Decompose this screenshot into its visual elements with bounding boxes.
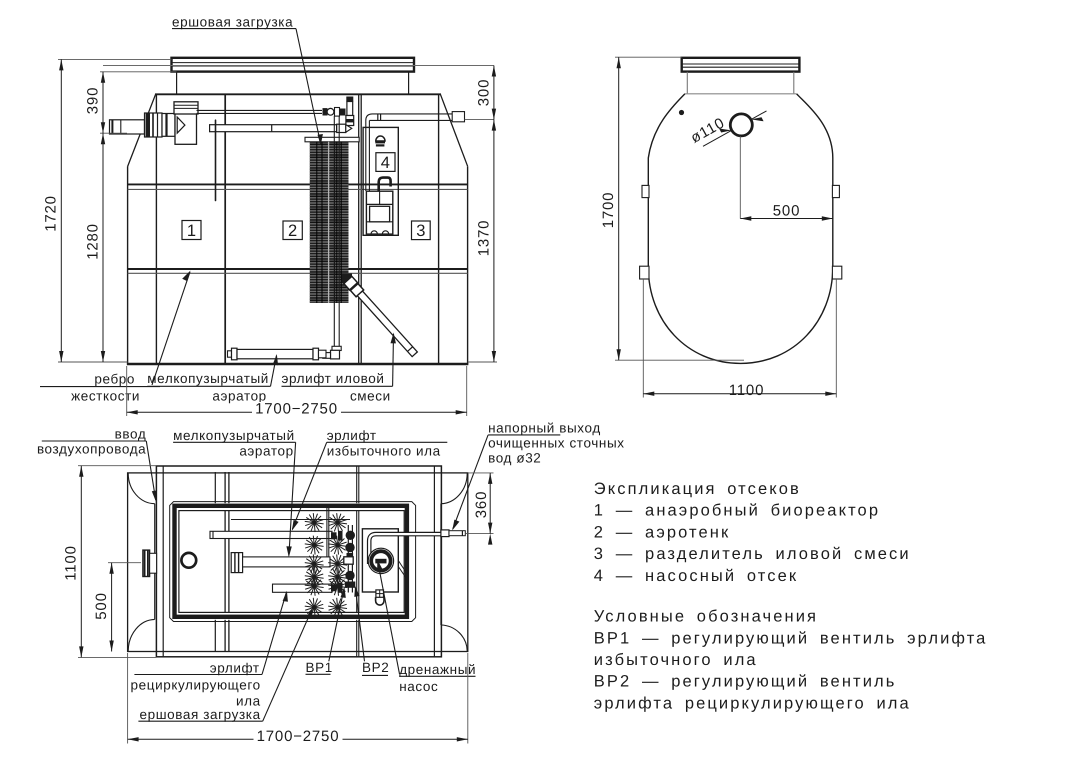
svg-text:1700: 1700 [600,192,617,229]
svg-text:ВР2 — регулирующий вентиль: ВР2 — регулирующий вентиль [594,673,897,691]
svg-text:3: 3 [416,222,425,240]
svg-text:ø110: ø110 [688,114,728,146]
svg-text:избыточного ила: избыточного ила [594,651,758,669]
svg-text:мелкопузырчатый: мелкопузырчатый [173,428,295,443]
svg-text:4: 4 [381,154,390,172]
svg-text:жесткости: жесткости [71,389,140,404]
svg-text:насос: насос [399,679,438,694]
svg-text:2 — аэротенк: 2 — аэротенк [594,523,731,541]
svg-text:вод ø32: вод ø32 [488,450,541,465]
svg-text:очищенных сточных: очищенных сточных [488,435,624,450]
svg-text:1280: 1280 [84,223,101,260]
svg-text:эрлифт: эрлифт [210,661,260,676]
svg-text:ершовая загрузка: ершовая загрузка [172,14,293,29]
svg-text:1700−2750: 1700−2750 [255,401,338,418]
svg-text:390: 390 [84,87,101,114]
svg-text:избыточного ила: избыточного ила [327,443,441,458]
svg-text:1720: 1720 [43,195,60,232]
svg-text:3 — разделитель иловой сме: 3 — разделитель иловой смеси [594,545,911,563]
svg-text:300: 300 [475,79,492,106]
svg-text:500: 500 [93,592,110,619]
svg-text:1 — анаэробный биореактор: 1 — анаэробный биореактор [594,502,880,520]
svg-text:ВР2: ВР2 [362,660,389,675]
svg-text:1700−2750: 1700−2750 [257,728,340,745]
svg-text:Условные обозначения: Условные обозначения [594,608,818,626]
svg-text:дренажный: дренажный [399,662,476,677]
svg-text:смеси: смеси [350,388,391,403]
svg-text:ребро: ребро [94,372,135,387]
svg-text:1370: 1370 [475,220,492,257]
svg-text:эрлифт иловой: эрлифт иловой [282,371,385,386]
svg-text:1100: 1100 [729,382,764,399]
svg-text:ершовая загрузка: ершовая загрузка [140,707,261,722]
svg-text:ВР1 — регулирующий вентиль: ВР1 — регулирующий вентиль эрлифта [594,629,988,647]
svg-text:Экспликация отсеков: Экспликация отсеков [594,480,801,498]
svg-text:1: 1 [187,222,196,240]
svg-text:воздухопровода: воздухопровода [37,442,146,457]
svg-text:напорный выход: напорный выход [488,420,601,435]
svg-text:мелкопузырчатый: мелкопузырчатый [147,371,269,386]
svg-text:рециркулирующего: рециркулирующего [131,678,261,693]
svg-text:360: 360 [473,491,490,518]
svg-text:1100: 1100 [63,545,80,580]
svg-text:ввод: ввод [115,427,147,442]
svg-text:4 — насосный отсек: 4 — насосный отсек [594,567,798,585]
svg-text:2: 2 [288,222,297,240]
svg-text:ВР1: ВР1 [306,660,333,675]
svg-text:эрлифта рециркулирующего ила: эрлифта рециркулирующего ила [594,694,911,712]
svg-text:эрлифт: эрлифт [327,428,377,443]
svg-text:500: 500 [773,203,800,220]
svg-text:аэратор: аэратор [239,443,293,458]
